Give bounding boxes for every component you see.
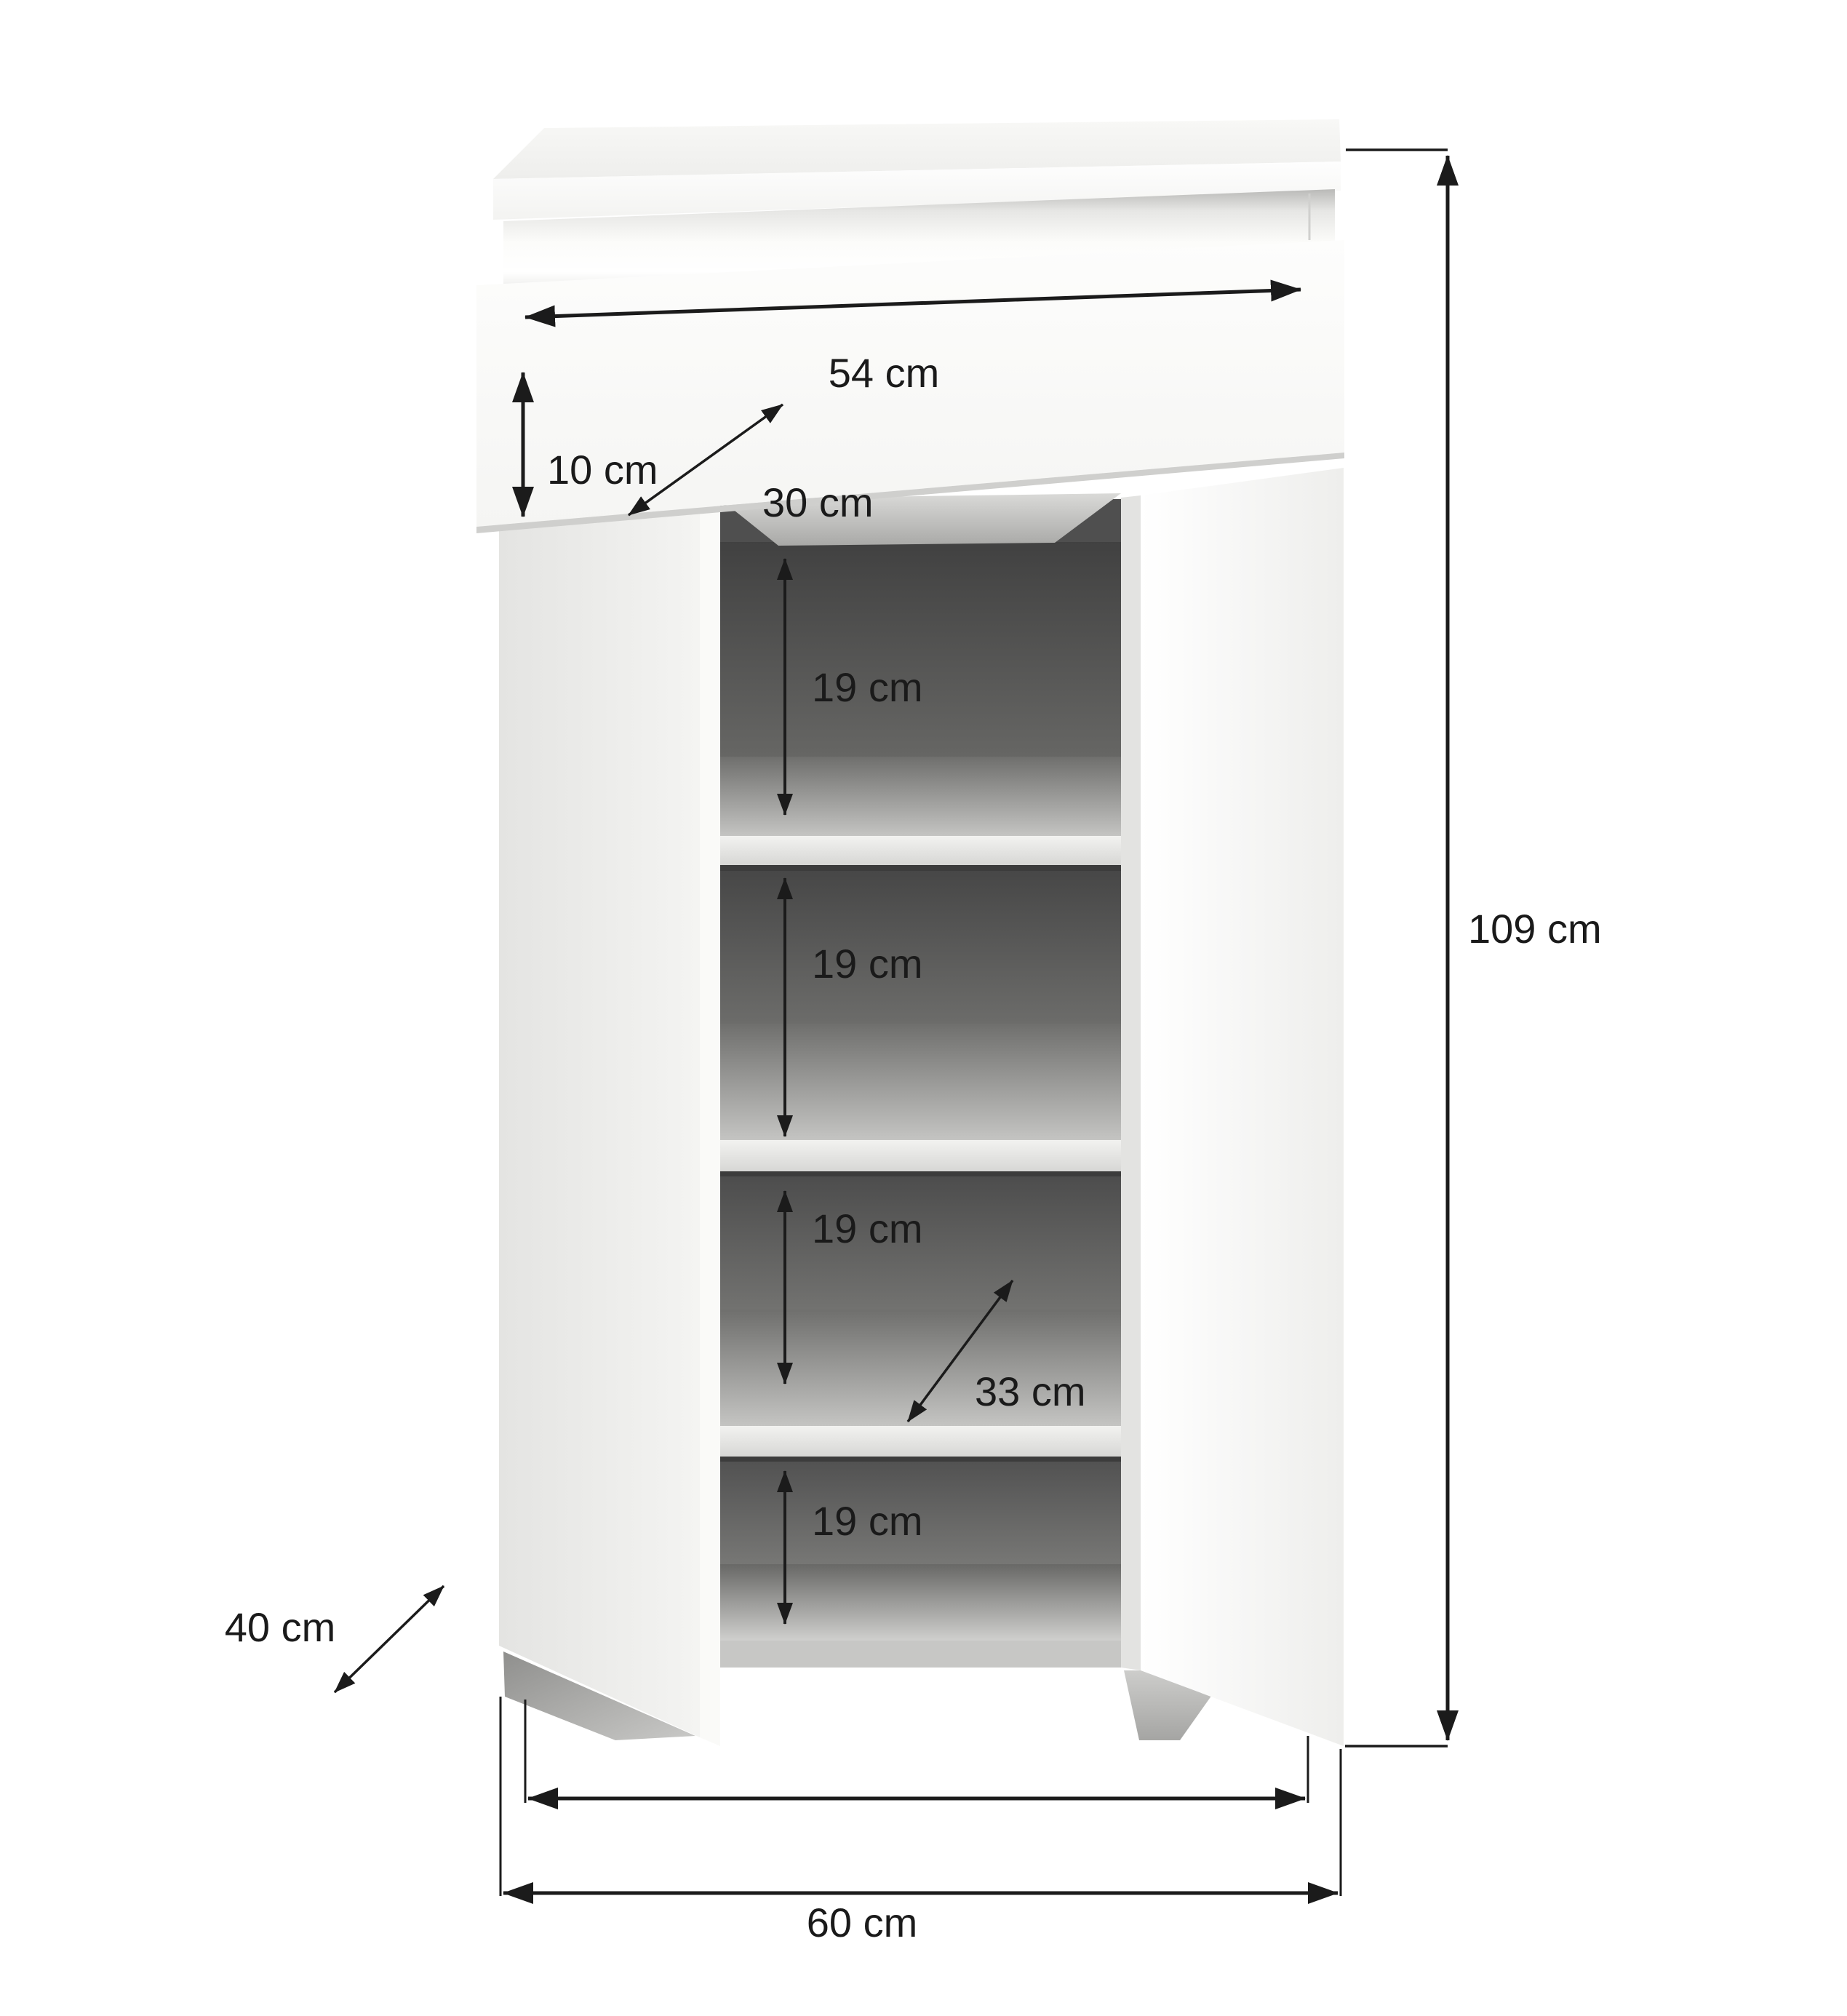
right-door: [1141, 468, 1344, 1746]
dim-shelf-gap-3-label: 19 cm: [812, 1206, 923, 1251]
dim-shelf-gap-2-label: 19 cm: [812, 941, 923, 987]
shelf-1-front-edge: [720, 836, 1121, 865]
shelf-3-front-edge: [720, 1426, 1121, 1457]
shelf-2-front-edge: [720, 1140, 1121, 1171]
interior-cavity-1: [720, 542, 1121, 757]
dim-total-height: 109 cm: [1345, 150, 1602, 1746]
dim-total-width-label: 60 cm: [807, 1900, 918, 1945]
dim-total-height-label: 109 cm: [1468, 906, 1602, 952]
right-door-edge: [1121, 495, 1141, 1670]
shelf-1-surface: [720, 757, 1121, 836]
shelf-1-shadow: [720, 865, 1121, 871]
bottom-board-surface: [720, 1564, 1121, 1641]
dim-drawer-height-label: 10 cm: [547, 447, 658, 493]
dim-shelf-gap-4-label: 19 cm: [812, 1498, 923, 1544]
dim-top-width-label: 54 cm: [829, 350, 940, 396]
dimension-diagram: 54 cm 10 cm 30 cm 19 cm 19 cm 19 cm 19 c…: [0, 0, 1847, 2016]
shelf-3-shadow: [720, 1457, 1121, 1462]
dim-shelf-depth-label: 33 cm: [975, 1368, 1086, 1414]
dim-drawer-depth-label: 30 cm: [762, 479, 874, 525]
bottom-board-front-edge: [720, 1641, 1121, 1668]
cabinet-diagram-canvas: 54 cm 10 cm 30 cm 19 cm 19 cm 19 cm 19 c…: [0, 0, 1847, 2016]
shelf-2-shadow: [720, 1171, 1121, 1176]
dim-total-depth: 40 cm: [225, 1586, 444, 1692]
shelf-2-surface: [720, 1024, 1121, 1140]
left-door: [499, 474, 700, 1737]
dim-total-depth-label: 40 cm: [225, 1604, 336, 1650]
dim-shelf-gap-1-label: 19 cm: [812, 664, 923, 710]
left-door-edge: [700, 505, 720, 1746]
